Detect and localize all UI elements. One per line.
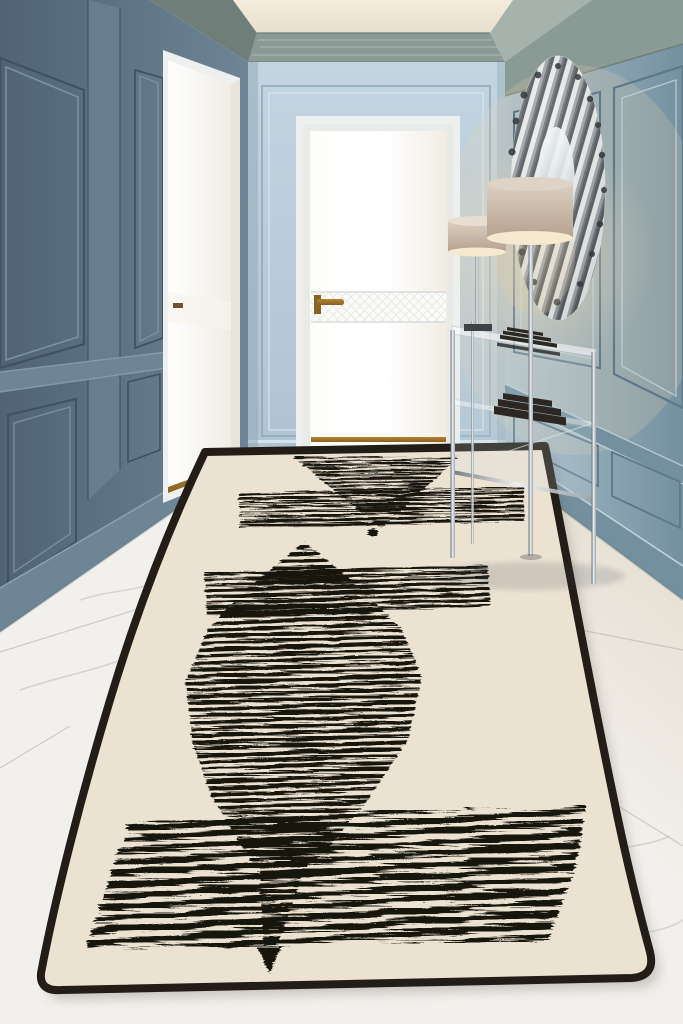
floor-lamp-shade-glow	[487, 231, 573, 245]
floor-lamp-foot-shadow	[520, 554, 542, 560]
center-door-handle	[317, 299, 344, 305]
rug-band-bottom	[82, 803, 583, 947]
left-door-frame-side	[231, 78, 240, 472]
console-leg-front-right	[592, 352, 597, 584]
left-door	[163, 50, 240, 503]
end-wall-left-corner-shade	[248, 62, 258, 464]
floor-lamp-shade-top	[487, 177, 573, 191]
table-lamp-pole	[476, 252, 479, 325]
rug-band-top	[237, 486, 523, 527]
ceiling-panel	[233, 0, 513, 33]
rug-motif-bottom	[82, 803, 583, 947]
left-wall-pilaster	[88, 0, 120, 500]
table-lamp-base	[464, 324, 492, 331]
console-floor-shadow	[435, 562, 625, 590]
rug-dot	[367, 528, 378, 535]
console-leg-rear	[471, 321, 474, 544]
left-door-slab	[168, 60, 231, 492]
center-door-quilt-pattern	[311, 293, 446, 321]
table-lamp-shade-glow	[448, 248, 506, 257]
left-door-handle	[173, 303, 183, 308]
floor-lamp-pole	[529, 238, 534, 556]
floor-lamp-shade	[487, 184, 573, 238]
center-door	[296, 116, 460, 464]
hallway-photo	[0, 0, 683, 1024]
center-door-gold-trim	[311, 437, 446, 442]
console-leg-front-left	[451, 330, 456, 558]
